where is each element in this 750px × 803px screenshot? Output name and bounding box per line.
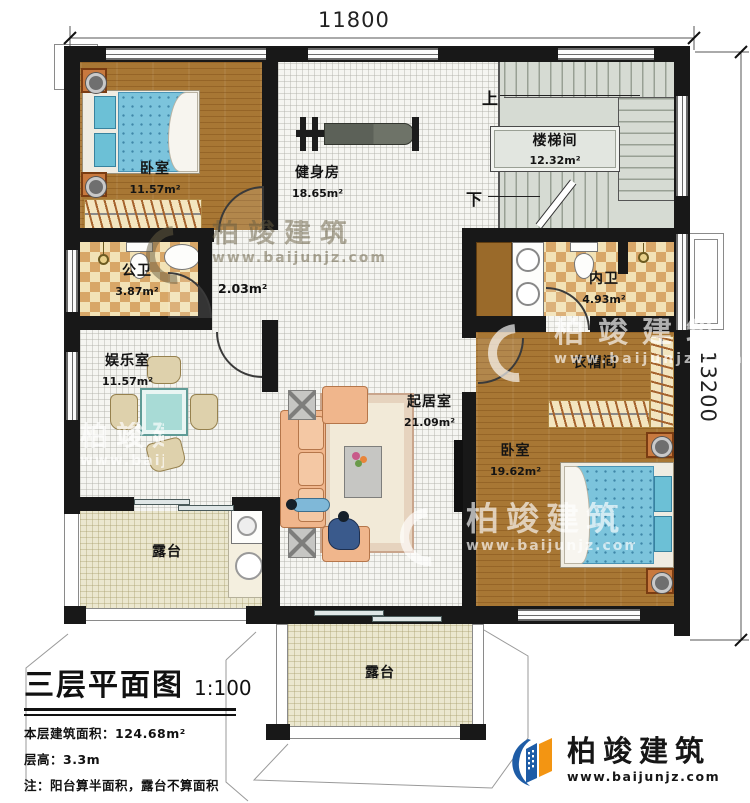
terrace-note: 注：阳台算半面积，露台不算面积	[24, 775, 259, 794]
lamp-icon	[86, 73, 106, 93]
brand-logo-icon	[506, 732, 558, 788]
window	[676, 234, 688, 330]
wall-terrace-left-b	[232, 497, 278, 511]
bedroom1-label: 卧室 11.57m²	[100, 158, 210, 197]
vanity-sink	[516, 248, 540, 272]
lamp-icon	[652, 573, 672, 593]
laundry-sink	[235, 552, 263, 580]
stair-line	[618, 200, 674, 201]
cloakroom-wardrobe	[548, 400, 650, 428]
title-underline	[24, 708, 236, 711]
toilet-tank	[126, 242, 153, 252]
cloakroom-closet	[650, 336, 674, 428]
floor-area-note: 本层建筑面积：124.68m²	[24, 723, 259, 742]
bed2-pillow	[654, 476, 672, 512]
wall-bath2-cloak-a	[462, 316, 546, 332]
dimension-top: 11800	[318, 8, 390, 32]
coffee-table	[344, 446, 382, 498]
title-block: 三层平面图 1:100 本层建筑面积：124.68m² 层高：3.3m 注：阳台…	[24, 660, 259, 794]
chair	[190, 394, 218, 430]
vanity-sink	[516, 282, 540, 306]
side-table	[288, 390, 316, 420]
sofa-cushion	[298, 416, 324, 450]
sofa-cushion	[298, 452, 324, 486]
nightstand	[646, 568, 674, 594]
window	[558, 48, 654, 60]
stair-down-arrow-line	[488, 196, 540, 197]
gym-bench	[324, 123, 414, 145]
wall-bath2-cloak-b	[590, 316, 674, 332]
flowers	[355, 460, 362, 467]
room-area: 4.93m²	[582, 293, 625, 306]
entertainment-label: 娱乐室 11.57m²	[70, 350, 185, 389]
stairwell-name: 楼梯间	[532, 133, 577, 149]
private-bath-label: 内卫 4.93m²	[562, 268, 646, 307]
stair-down-label: 下	[466, 186, 482, 210]
armchair-top	[322, 386, 368, 424]
tv	[454, 440, 463, 512]
living-label: 起居室 21.09m²	[372, 391, 487, 430]
person-head	[286, 499, 297, 510]
sliding-door	[134, 498, 232, 510]
room-area: 11.57m²	[129, 183, 180, 196]
lamp-icon	[652, 437, 672, 457]
brand-name: 柏竣建筑	[567, 737, 720, 766]
parapet-post	[64, 606, 86, 624]
room-name: 卧室	[501, 443, 531, 459]
room-name: 衣帽间	[573, 355, 618, 371]
room-area: 11.57m²	[102, 375, 153, 388]
room-name: 健身房	[295, 165, 340, 181]
cloakroom-label: 衣帽间	[545, 352, 645, 372]
room-name: 起居室	[407, 394, 452, 410]
window	[66, 250, 78, 312]
stairwell-label-box: 楼梯间 12.32m²	[490, 126, 620, 172]
stair-flight-top	[504, 62, 674, 98]
parapet-post	[266, 724, 290, 740]
title-underline	[24, 714, 236, 716]
stair-up-arrow-line	[500, 95, 640, 96]
room-name: 公卫	[122, 263, 152, 279]
terrace-parapet	[472, 624, 484, 736]
vanity-counter	[476, 242, 512, 318]
floor-plan-canvas: 11800 13200 上 下 楼梯间 12.32m²	[0, 0, 750, 803]
room-area: 18.65m²	[292, 187, 343, 200]
side-table	[288, 528, 316, 558]
person-head	[338, 511, 349, 522]
gym-end-bar	[412, 117, 419, 151]
stair-up-label: 上	[482, 85, 498, 109]
terrace-left-label: 露台	[122, 541, 212, 561]
window	[308, 48, 438, 60]
toilet-tank	[570, 242, 598, 252]
terrace-parapet	[276, 624, 288, 736]
flowers	[352, 452, 360, 460]
wall-laundry-living	[262, 497, 280, 617]
bed2-pillow	[654, 516, 672, 552]
room-name: 内卫	[589, 271, 619, 287]
wall-stub-entertainment	[262, 320, 278, 392]
stairwell-area: 12.32m²	[529, 154, 580, 167]
chair	[110, 394, 138, 430]
gym-label: 健身房 18.65m²	[270, 162, 365, 201]
window	[106, 48, 266, 60]
window	[676, 96, 688, 196]
stair-flight-right	[618, 98, 674, 200]
room-name: 娱乐室	[105, 353, 150, 369]
parapet-post	[246, 606, 268, 624]
gym-rack-crossbar	[296, 130, 324, 137]
wall-bath-entertainment	[64, 316, 212, 330]
nightstand	[646, 432, 674, 458]
wall-bedroom1-bath	[64, 228, 214, 242]
room-area: 21.09m²	[404, 416, 455, 429]
terrace-bottom-label: 露台	[330, 662, 430, 682]
stair-line	[504, 97, 674, 98]
room-area: 3.87m²	[115, 285, 158, 298]
bay-window	[688, 233, 724, 330]
public-bath-label: 公卫 3.87m²	[95, 260, 179, 299]
room-name: 露台	[365, 665, 395, 681]
terrace-parapet	[84, 608, 248, 621]
brand-website: www.baijunjz.com	[567, 769, 720, 784]
terrace-parapet	[64, 511, 79, 611]
bedroom2-label: 卧室 19.62m²	[468, 440, 563, 479]
game-table	[140, 388, 188, 436]
person-sitting	[328, 518, 360, 550]
sliding-door	[314, 609, 440, 621]
ceiling-lamp-icon	[638, 252, 649, 263]
nightstand	[81, 68, 107, 93]
parapet-post	[460, 724, 486, 740]
brand-logo: 柏竣建筑 www.baijunjz.com	[506, 732, 720, 788]
bed1-pillow	[94, 96, 116, 129]
plan-title: 三层平面图	[24, 660, 184, 704]
wall-terrace-left-a	[64, 497, 134, 511]
washer-drum	[237, 516, 257, 536]
dimension-right: 13200	[696, 351, 720, 423]
person-lying	[292, 498, 330, 512]
plan-scale: 1:100	[194, 676, 252, 700]
window	[518, 609, 640, 621]
bedroom1-wardrobe	[84, 199, 202, 229]
wall-bedroom1-gym	[262, 46, 278, 230]
terrace-parapet	[276, 726, 484, 739]
wall-stair-bath	[462, 228, 690, 242]
room-name: 露台	[152, 544, 182, 560]
floor-height-note: 层高：3.3m	[24, 749, 259, 768]
room-name: 卧室	[140, 161, 170, 177]
hallway-area-label: 2.03m²	[218, 281, 267, 296]
room-area: 19.62m²	[490, 465, 541, 478]
